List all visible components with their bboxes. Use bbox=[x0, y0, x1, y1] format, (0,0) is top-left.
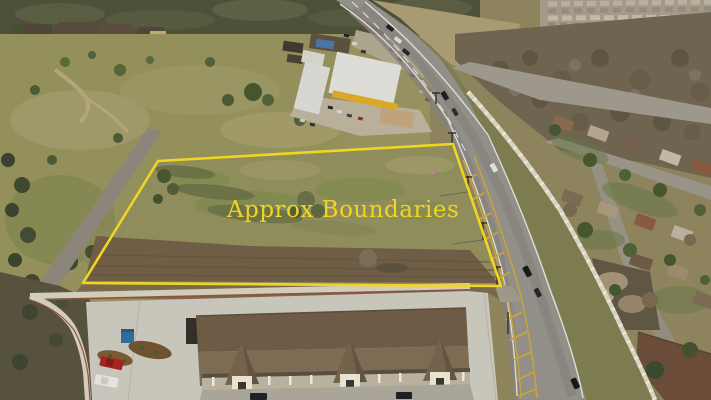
dark-car bbox=[250, 393, 267, 400]
foreground-building bbox=[186, 308, 474, 400]
survey-flag bbox=[432, 172, 435, 175]
dark-car-2 bbox=[396, 392, 412, 399]
bare-tree bbox=[359, 249, 377, 267]
aerial-photo: Approx Boundaries bbox=[0, 0, 711, 400]
boundary-label: Approx Boundaries bbox=[226, 197, 459, 223]
